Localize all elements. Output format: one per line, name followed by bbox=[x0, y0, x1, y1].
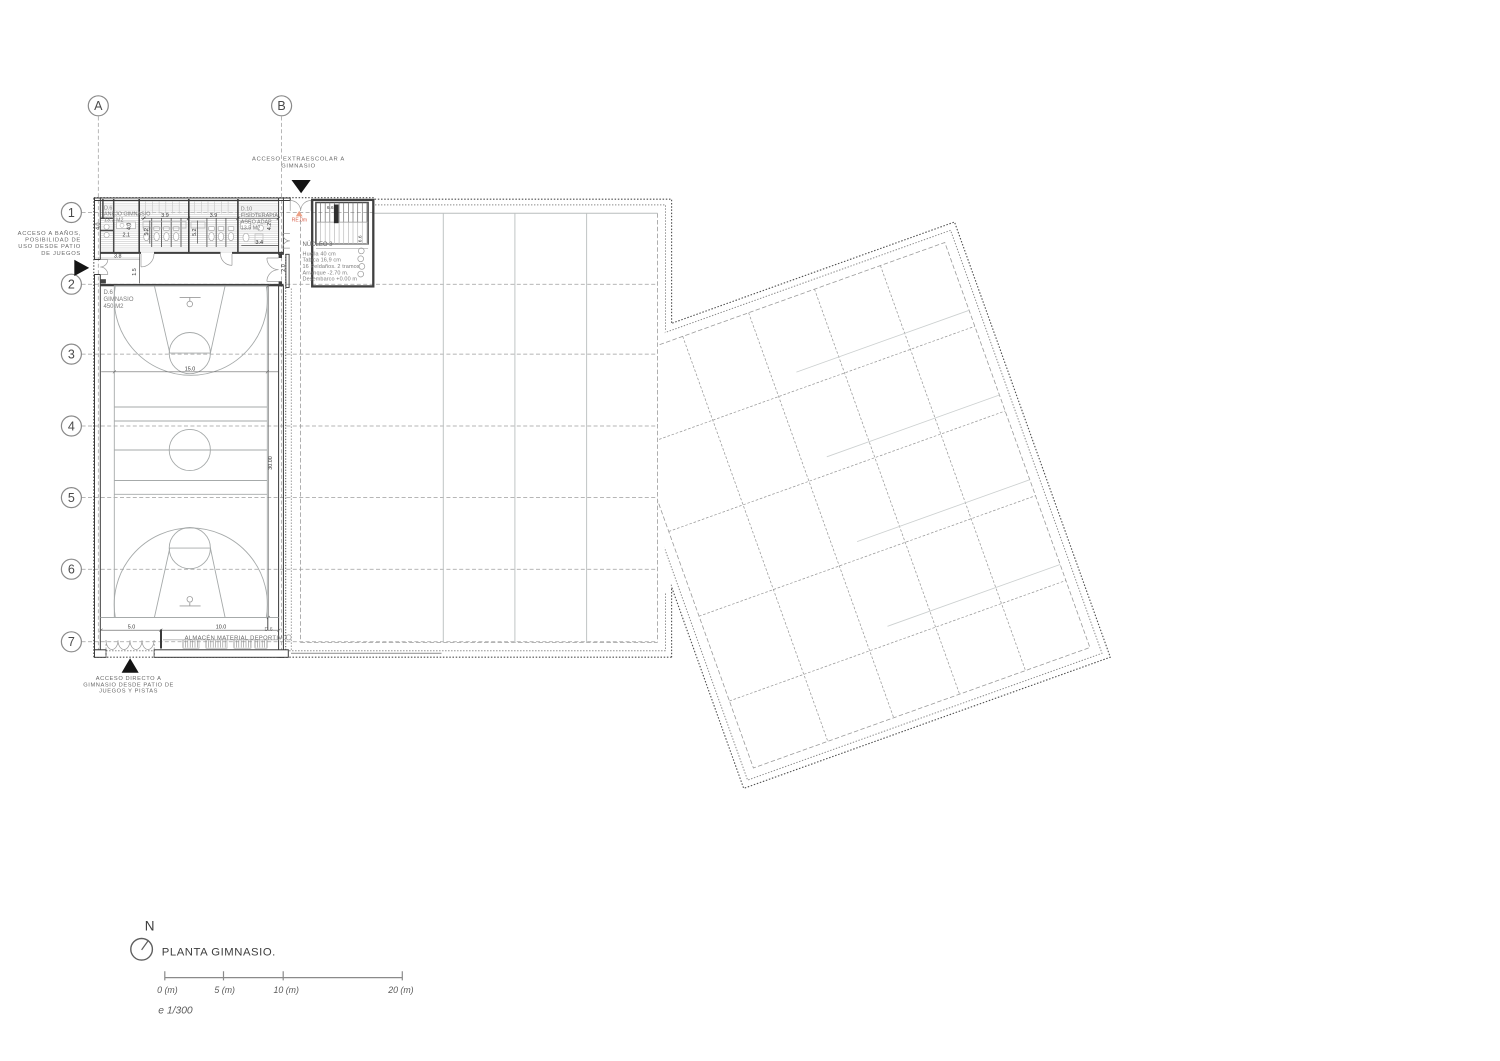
svg-text:POSIBILIDAD DE: POSIBILIDAD DE bbox=[25, 238, 81, 244]
svg-text:DE JUEGOS: DE JUEGOS bbox=[41, 251, 81, 257]
svg-text:4: 4 bbox=[68, 419, 75, 433]
svg-text:D.6: D.6 bbox=[104, 290, 114, 296]
svg-text:3.4: 3.4 bbox=[256, 240, 264, 246]
svg-text:B: B bbox=[277, 99, 285, 113]
svg-text:5.0: 5.0 bbox=[128, 625, 136, 631]
svg-text:FISIOTERAPIA: FISIOTERAPIA bbox=[241, 213, 279, 219]
svg-text:15.0: 15.0 bbox=[185, 366, 196, 372]
svg-text:30.00: 30.00 bbox=[268, 456, 274, 470]
svg-text:ASEO ADAP: ASEO ADAP bbox=[241, 219, 272, 225]
svg-text:1.5: 1.5 bbox=[132, 268, 138, 276]
svg-text:GIMNASIO: GIMNASIO bbox=[104, 297, 134, 303]
svg-text:16 Peldaños. 2 tramos: 16 Peldaños. 2 tramos bbox=[303, 264, 360, 270]
svg-text:Desembarco +0.00 m: Desembarco +0.00 m bbox=[303, 277, 358, 283]
svg-text:3: 3 bbox=[68, 348, 75, 362]
svg-text:450 M2: 450 M2 bbox=[104, 304, 125, 310]
svg-text:PLANTA GIMNASIO.: PLANTA GIMNASIO. bbox=[162, 946, 276, 958]
svg-text:10 (m): 10 (m) bbox=[273, 985, 298, 995]
svg-text:ACCESO EXTRAESCOLAR A: ACCESO EXTRAESCOLAR A bbox=[252, 157, 345, 163]
svg-text:N: N bbox=[145, 919, 155, 934]
svg-text:13.2 M2: 13.2 M2 bbox=[104, 218, 123, 224]
svg-text:4.0: 4.0 bbox=[127, 223, 133, 231]
svg-text:1: 1 bbox=[68, 206, 75, 220]
svg-text:2: 2 bbox=[68, 278, 75, 292]
svg-text:JUEGOS Y PISTAS: JUEGOS Y PISTAS bbox=[99, 689, 158, 695]
svg-text:GIMNASIO DESDE PATIO DE: GIMNASIO DESDE PATIO DE bbox=[83, 682, 174, 688]
svg-text:Tabica 16,9 cm: Tabica 16,9 cm bbox=[303, 258, 342, 264]
svg-text:ACCESO DIRECTO A: ACCESO DIRECTO A bbox=[96, 676, 162, 682]
svg-text:5: 5 bbox=[68, 491, 75, 505]
svg-text:D.6: D.6 bbox=[265, 627, 273, 633]
svg-text:5.2: 5.2 bbox=[192, 229, 198, 237]
svg-text:e 1/300: e 1/300 bbox=[158, 1006, 193, 1017]
svg-text:6.6: 6.6 bbox=[358, 235, 364, 242]
svg-text:6.6: 6.6 bbox=[327, 205, 334, 211]
svg-text:13.5 M2: 13.5 M2 bbox=[241, 226, 260, 232]
svg-text:A: A bbox=[94, 99, 103, 113]
svg-text:6: 6 bbox=[68, 563, 75, 577]
svg-text:5.2: 5.2 bbox=[144, 228, 150, 236]
svg-text:5 (m): 5 (m) bbox=[214, 985, 235, 995]
svg-text:RE.0m: RE.0m bbox=[292, 218, 307, 224]
svg-text:GIMNASIO: GIMNASIO bbox=[281, 164, 316, 170]
svg-text:ALMACÉN MATERIAL DEPORTIVO: ALMACÉN MATERIAL DEPORTIVO bbox=[185, 635, 288, 642]
svg-text:3.8: 3.8 bbox=[114, 254, 122, 260]
svg-text:NÚCLEO 3: NÚCLEO 3 bbox=[303, 241, 334, 248]
svg-text:ANEJO GIMNASIO: ANEJO GIMNASIO bbox=[104, 212, 150, 218]
svg-text:2.1: 2.1 bbox=[123, 233, 131, 239]
svg-text:Huella 40 cm: Huella 40 cm bbox=[303, 251, 337, 257]
svg-text:7: 7 bbox=[68, 635, 75, 649]
svg-text:0 (m): 0 (m) bbox=[157, 985, 178, 995]
svg-text:D.6: D.6 bbox=[104, 206, 112, 212]
svg-text:20 (m): 20 (m) bbox=[387, 985, 413, 995]
svg-text:D.10: D.10 bbox=[241, 207, 252, 213]
svg-text:10.0: 10.0 bbox=[216, 625, 227, 631]
svg-text:3.9: 3.9 bbox=[161, 213, 169, 219]
svg-text:USO DESDE PATIO: USO DESDE PATIO bbox=[18, 244, 81, 250]
svg-text:ACCESO A BAÑOS,: ACCESO A BAÑOS, bbox=[18, 230, 81, 237]
svg-text:3.9: 3.9 bbox=[210, 213, 218, 219]
svg-text:Arranque -2.70 m.: Arranque -2.70 m. bbox=[303, 270, 349, 276]
